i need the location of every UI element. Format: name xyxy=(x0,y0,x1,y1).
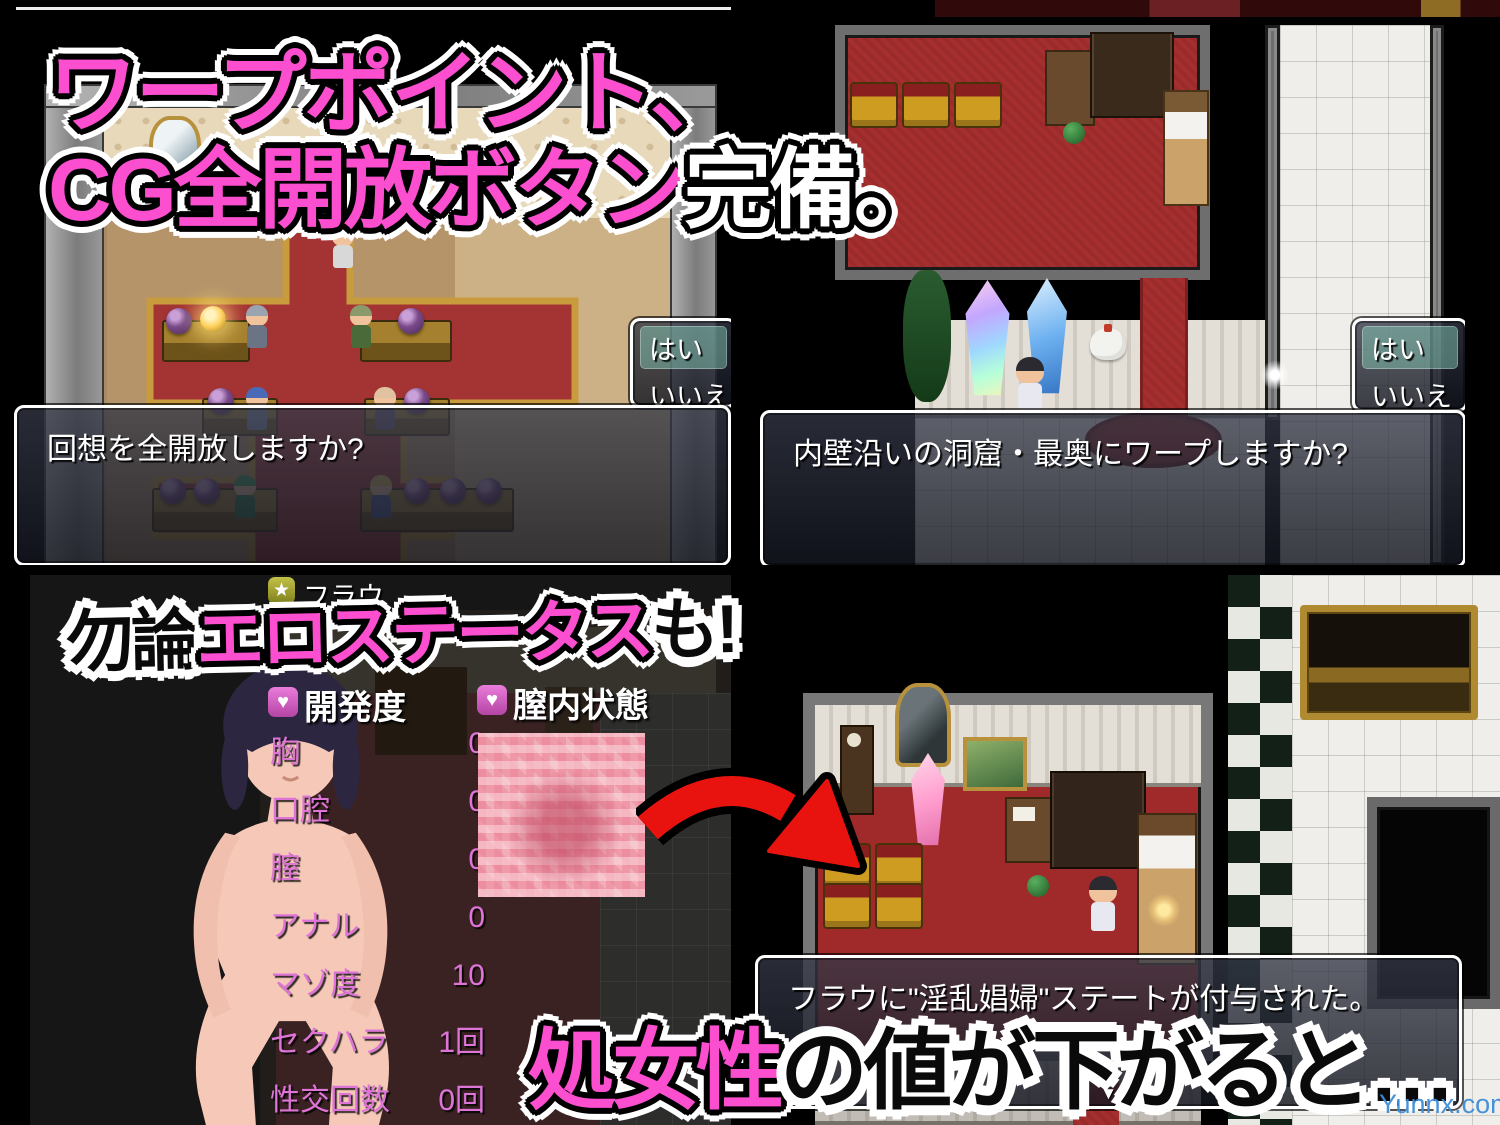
stat-row: マゾ度10 xyxy=(270,959,485,1003)
stat-value: 0 xyxy=(468,901,485,945)
dialog-text: 回想を全開放しますか? xyxy=(47,424,364,468)
choice-window: はい いいえ xyxy=(630,318,731,408)
stat-value: 0回 xyxy=(438,1075,485,1119)
memory-orb[interactable] xyxy=(166,308,192,334)
section-development-title: 開発度 xyxy=(304,680,406,729)
choice-yes[interactable]: はい xyxy=(1363,327,1457,368)
stat-value: 1回 xyxy=(438,1017,485,1061)
promo-canvas: はい いいえ 回想を全開放しますか? はい い xyxy=(0,0,1500,1125)
promo-title-line1: ワープポイント、 xyxy=(48,44,737,144)
stat-row: 胸0 xyxy=(270,727,485,771)
promo-mid-suffix: も! xyxy=(650,591,736,669)
clock-face xyxy=(847,733,861,747)
top-right-cropped-strip xyxy=(935,0,1500,17)
stat-label: 膣 xyxy=(270,843,300,887)
promo-title: ワープポイント、 CG全開放ボタン完備。 xyxy=(48,46,939,238)
promo-mid-text: 勿論エロステータスも! xyxy=(65,573,737,686)
promo-mid-prefix: 勿論 xyxy=(65,602,197,681)
wardrobe-prop xyxy=(1090,32,1174,118)
treasure-chest[interactable] xyxy=(875,883,923,929)
heart-icon: ♥ xyxy=(477,685,507,715)
memory-orb[interactable] xyxy=(398,308,424,334)
stat-label: アナル xyxy=(270,901,359,945)
heart-glyph: ♥ xyxy=(277,691,289,714)
topiary-tree-prop xyxy=(903,270,951,402)
choice-no[interactable]: いいえ xyxy=(1363,374,1457,415)
plant-pot-prop xyxy=(1027,875,1049,897)
heart-icon: ♥ xyxy=(268,687,298,717)
player-character xyxy=(1012,356,1048,414)
stat-label: 口腔 xyxy=(270,785,330,829)
chicken-sprite xyxy=(1090,328,1126,360)
treasure-chest[interactable] xyxy=(823,883,871,929)
npc-villager[interactable] xyxy=(346,304,376,350)
promo-bottom-suffix: の値が下がると… xyxy=(780,1021,1452,1120)
choice-yes[interactable]: はい xyxy=(641,327,726,368)
stat-row: 性交回数0回 xyxy=(270,1075,485,1119)
sparkle-effect xyxy=(1260,360,1290,390)
stat-row: セクハラ1回 xyxy=(270,1017,485,1061)
promo-title-line2-white: 完備。 xyxy=(684,140,939,239)
stat-list: 胸0 口腔0 膣0 アナル0 マゾ度10 セクハラ1回 性交回数0回 経験人数0… xyxy=(270,727,485,1125)
sparkle-effect xyxy=(1147,893,1181,927)
promo-bottom-text: 処女性の値が下がると… xyxy=(528,1000,1452,1125)
memory-orb-glowing[interactable] xyxy=(200,306,226,332)
section-vaginal-title: 膣内状態 xyxy=(513,678,649,727)
stat-label: セクハラ xyxy=(270,1017,389,1061)
open-book xyxy=(1013,807,1035,821)
promo-bottom-pink: 処女性 xyxy=(528,1021,780,1120)
message-window: 回想を全開放しますか? xyxy=(14,405,731,565)
stat-label: マゾ度 xyxy=(270,959,360,1003)
treasure-chest[interactable] xyxy=(954,82,1002,128)
stat-label: 性交回数 xyxy=(270,1075,390,1119)
npc-knight[interactable] xyxy=(242,304,272,350)
watermark-text: Yunnx.com xyxy=(1379,1089,1500,1120)
message-window: 内壁沿いの洞窟・最奥にワープしますか? xyxy=(760,410,1465,565)
bed-prop xyxy=(1137,813,1197,965)
stat-label: 胸 xyxy=(270,727,300,771)
wardrobe-prop xyxy=(1050,771,1146,869)
stat-row: アナル0 xyxy=(270,901,485,945)
promo-mid-pink: エロステータス xyxy=(195,593,652,679)
painting-prop xyxy=(963,737,1027,791)
red-arrow-icon xyxy=(636,762,884,884)
heart-glyph: ♥ xyxy=(486,689,498,712)
mirror-prop xyxy=(895,683,951,767)
dialog-text: 内壁沿いの洞窟・最奥にワープしますか? xyxy=(793,429,1348,473)
lower-wall xyxy=(1188,320,1265,418)
stat-value: 10 xyxy=(452,959,485,1003)
promo-title-line2-pink: CG全開放ボタン xyxy=(48,140,684,239)
top-divider-line xyxy=(16,7,731,10)
stat-row: 膣0 xyxy=(270,843,485,887)
player-character xyxy=(1085,875,1121,933)
chicken-comb xyxy=(1104,324,1112,332)
plant-pot-prop xyxy=(1063,122,1085,144)
stat-row: 口腔0 xyxy=(270,785,485,829)
desk-prop xyxy=(1045,50,1095,126)
bed-prop xyxy=(1163,90,1209,206)
red-path xyxy=(1140,278,1188,418)
mosaic-status-image xyxy=(478,733,645,897)
choice-window: はい いいえ xyxy=(1352,318,1465,412)
gold-bench-prop xyxy=(1300,605,1478,720)
